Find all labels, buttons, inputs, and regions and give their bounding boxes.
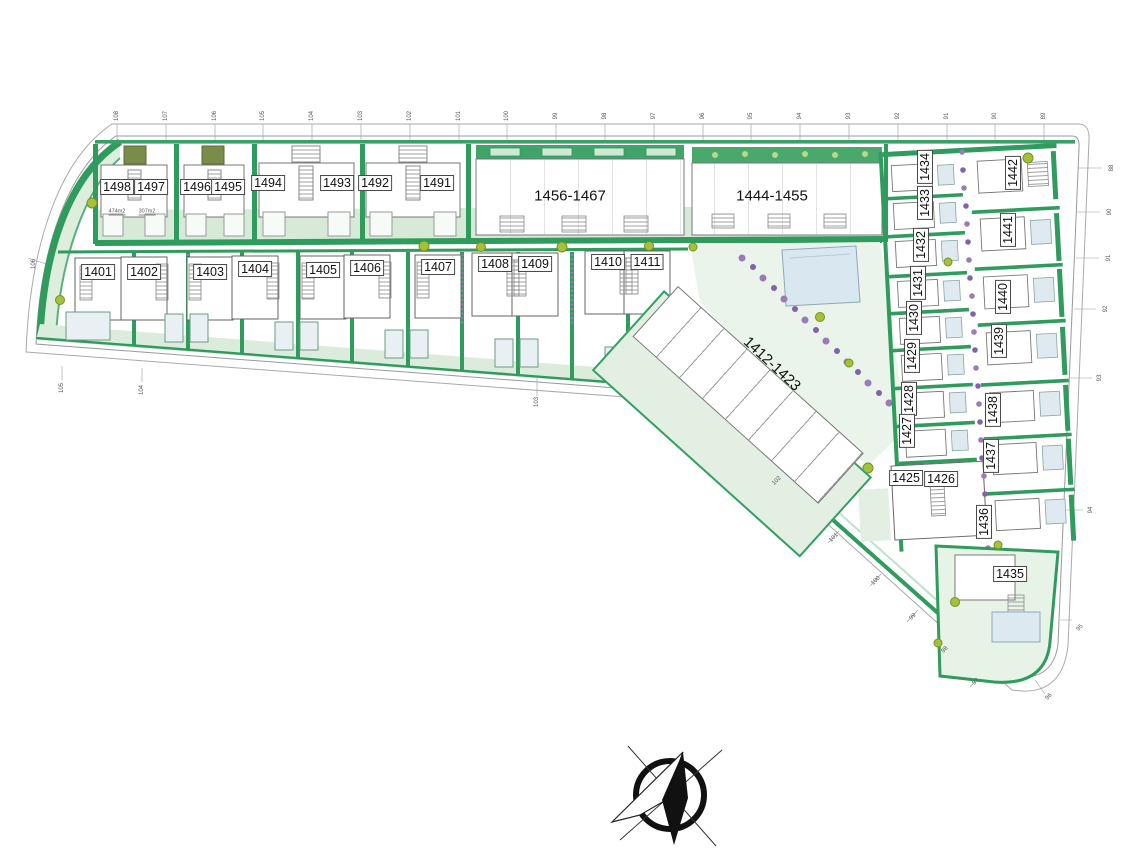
station-label: 104 [139, 385, 145, 395]
station-label: 96 [700, 113, 706, 120]
station-label: 103 [534, 397, 540, 407]
plot-label-1430: 1430 [906, 301, 922, 335]
station-label: 101 [456, 111, 462, 121]
plot-label-1425: 1425 [889, 470, 923, 486]
plot-label-1405: 1405 [306, 262, 340, 278]
station-label: 95 [1076, 624, 1085, 633]
station-label: 102 [407, 111, 413, 121]
plot-label-1431: 1431 [910, 266, 926, 300]
station-label: 100 [870, 575, 881, 586]
plot-label-1442: 1442 [1005, 156, 1021, 190]
area-label-307m2: 307m2 [139, 209, 156, 216]
station-label: 105 [59, 383, 65, 393]
plot-label-1439: 1439 [991, 324, 1007, 358]
plot-label-1410: 1410 [591, 254, 625, 270]
station-label: 98 [941, 646, 950, 655]
station-label: 101 [828, 532, 839, 543]
plot-label-1411: 1411 [631, 254, 664, 270]
block-label-1412-1423: 1412-1423 [740, 333, 804, 394]
station-label: 96 [1045, 693, 1054, 702]
area-label-474m2: 474m2 [109, 209, 126, 216]
station-label: 103 [358, 111, 364, 121]
plot-label-1407: 1407 [421, 259, 455, 275]
plot-label-1496: 1496 [180, 179, 214, 195]
station-label: 106 [31, 259, 37, 269]
station-label: 89 [1041, 113, 1047, 120]
station-label: 90 [1107, 209, 1113, 216]
plot-label-1435: 1435 [993, 566, 1027, 582]
plot-label-1426: 1426 [924, 471, 958, 487]
plot-label-1406: 1406 [350, 260, 384, 276]
station-label: 95 [748, 113, 754, 120]
plot-label-1409: 1409 [518, 256, 552, 272]
station-label: 94 [1088, 507, 1094, 514]
station-label: 97 [651, 113, 657, 120]
station-label: 105 [260, 111, 266, 121]
station-label: 98 [602, 113, 608, 120]
site-plan: 1498 1497 1496 1495 1494 1493 1492 1491 … [0, 0, 1140, 860]
plot-label-1495: 1495 [211, 179, 245, 195]
plot-label-1493: 1493 [320, 175, 354, 191]
plot-label-1491: 1491 [420, 175, 454, 191]
station-label: 92 [895, 113, 901, 120]
plot-label-1408: 1408 [478, 256, 512, 272]
station-label: 99 [553, 113, 559, 120]
station-label: 106 [212, 111, 218, 121]
plot-label-1440: 1440 [995, 280, 1011, 314]
plot-label-1437: 1437 [983, 439, 999, 473]
station-label: 99 [909, 613, 918, 622]
station-label: 108 [114, 111, 120, 121]
station-label: 94 [797, 113, 803, 120]
plot-label-1433: 1433 [917, 186, 933, 220]
station-label: 93 [1097, 375, 1103, 382]
plot-label-1434: 1434 [917, 150, 933, 184]
plot-label-1429: 1429 [904, 339, 920, 373]
station-label: 107 [163, 111, 169, 121]
station-label: 100 [504, 111, 510, 121]
station-label: 92 [1103, 306, 1109, 313]
station-label: 93 [846, 113, 852, 120]
plot-label-1403: 1403 [193, 264, 227, 280]
station-label: 97 [972, 678, 981, 687]
plot-label-1404: 1404 [238, 261, 272, 277]
station-label: 104 [309, 111, 315, 121]
plot-label-1428: 1428 [901, 382, 917, 416]
plot-label-1441: 1441 [1000, 213, 1016, 247]
plot-label-1427: 1427 [899, 414, 915, 448]
plot-label-1438: 1438 [985, 393, 1001, 427]
plot-label-1401: 1401 [81, 264, 115, 280]
plot-label-1402: 1402 [127, 264, 161, 280]
station-label: 91 [944, 113, 950, 120]
block-label-1444-1455: 1444-1455 [736, 188, 808, 205]
station-label: 91 [1106, 255, 1112, 262]
station-label: 102 [771, 475, 782, 486]
labels: 1498 1497 1496 1495 1494 1493 1492 1491 … [0, 0, 1140, 860]
station-label: 88 [1109, 165, 1115, 172]
plot-label-1494: 1494 [251, 175, 285, 191]
plot-label-1436: 1436 [976, 505, 992, 539]
plot-label-1492: 1492 [358, 175, 392, 191]
plot-label-1497: 1497 [134, 179, 168, 195]
plot-label-1432: 1432 [913, 228, 929, 262]
block-label-1456-1467: 1456-1467 [534, 188, 606, 205]
station-label: 90 [992, 113, 998, 120]
plot-label-1498: 1498 [100, 179, 134, 195]
